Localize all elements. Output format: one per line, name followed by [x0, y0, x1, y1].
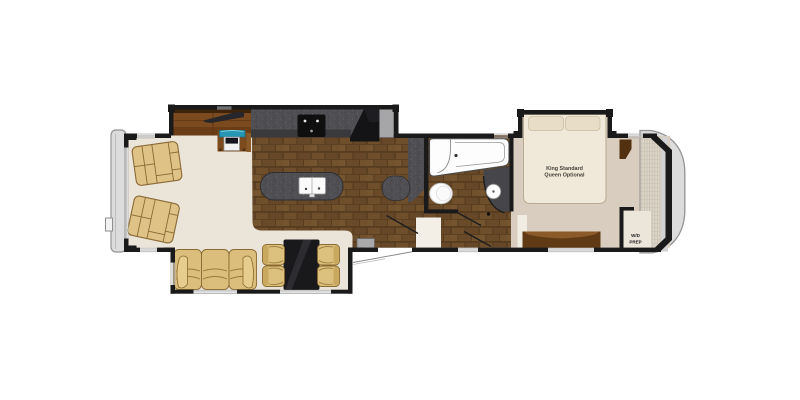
svg-text:PREP: PREP [629, 240, 641, 245]
svg-text:W/D: W/D [631, 233, 640, 238]
svg-text:Queen Optional: Queen Optional [544, 172, 585, 178]
svg-text:King Standard: King Standard [546, 166, 583, 172]
